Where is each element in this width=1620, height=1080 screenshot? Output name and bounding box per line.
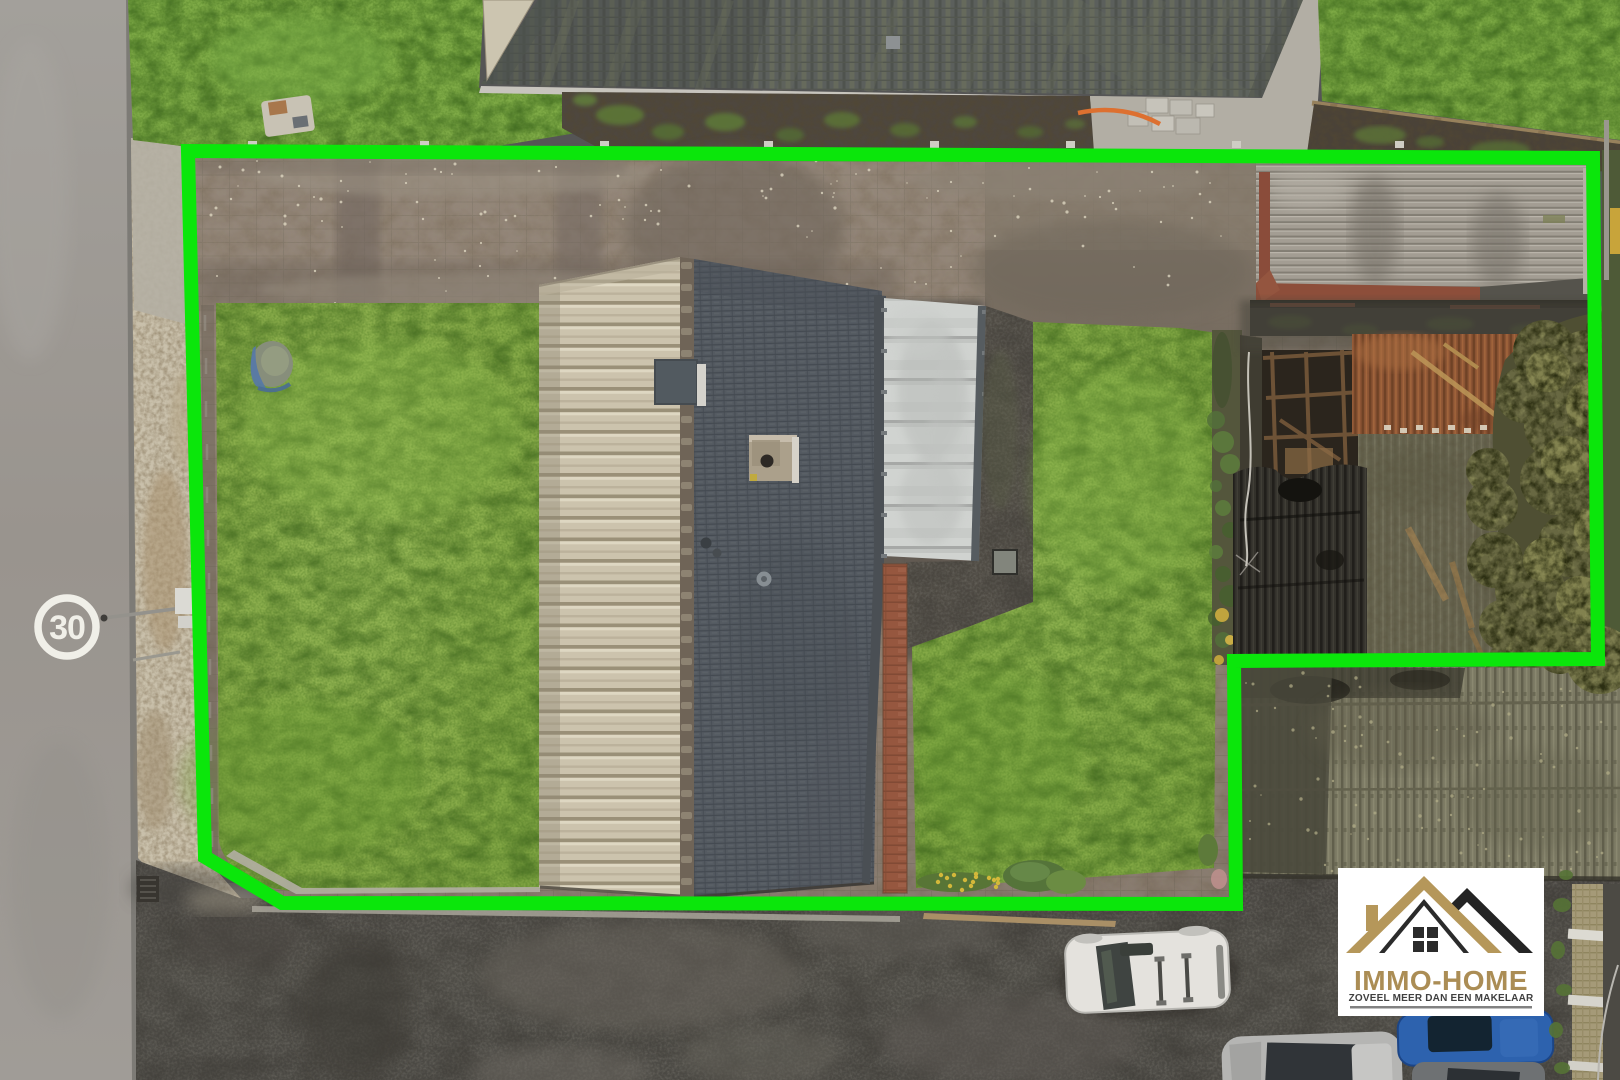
svg-text:30: 30 xyxy=(49,609,85,647)
svg-text:ZOVEEL MEER DAN EEN MAKELAAR: ZOVEEL MEER DAN EEN MAKELAAR xyxy=(1349,993,1534,1004)
svg-text:IMMO-HOME: IMMO-HOME xyxy=(1354,965,1528,996)
